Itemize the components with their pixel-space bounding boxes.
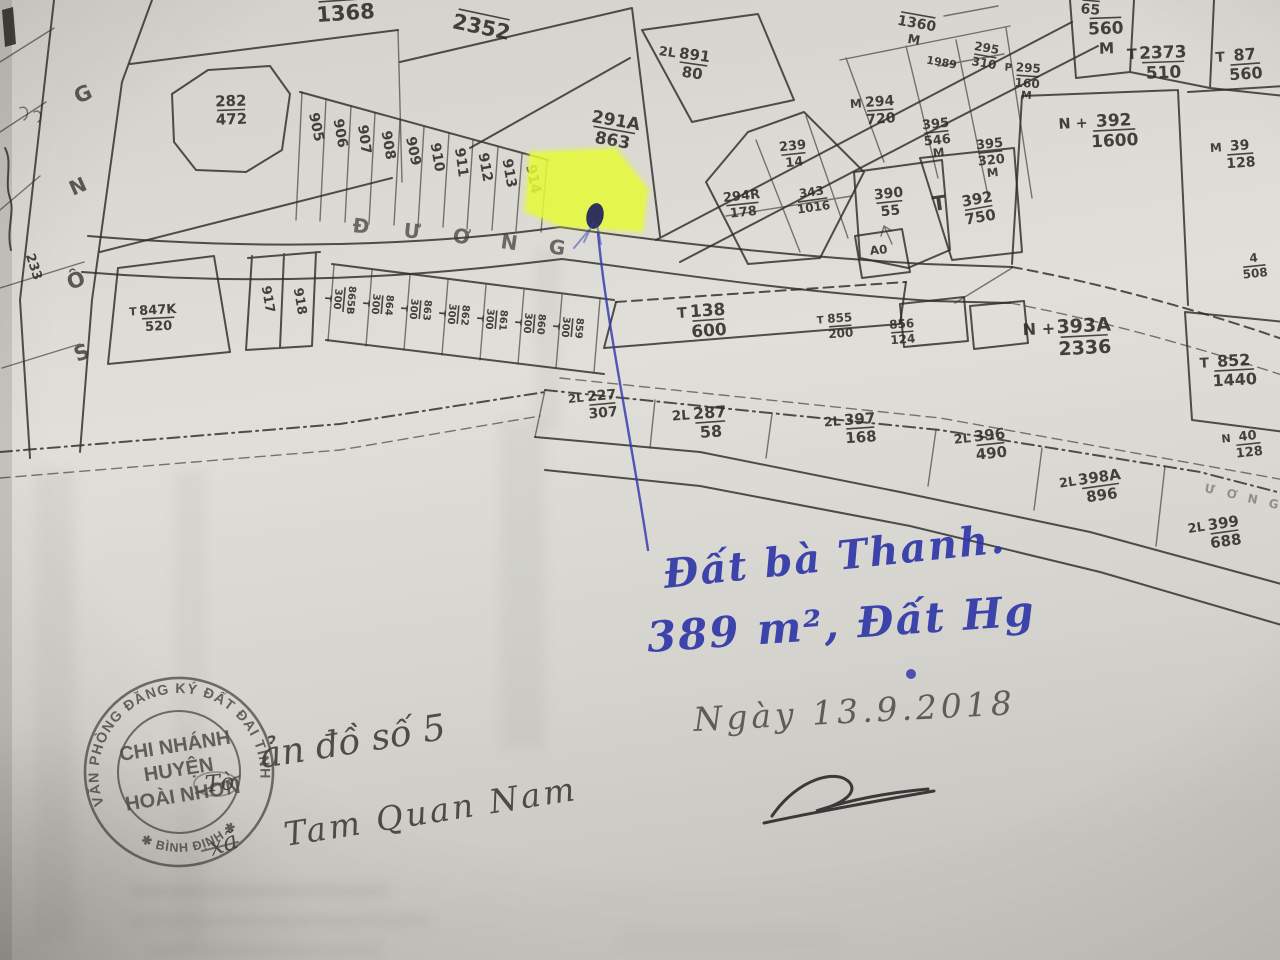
parcel-label-text: 65 [1080,1,1101,19]
parcel-label-text: M [1099,39,1115,58]
parcel-label: 65 [1080,0,1101,19]
parcel-label-text: 2L [658,44,677,61]
parcel-label-text: 55 [880,202,901,220]
parcel-label-text: T [1199,355,1210,372]
parcel-label-text: 720 [866,110,897,128]
parcel-label-text: M [907,31,922,48]
parcel-label-text: 80 [681,63,704,84]
parcel-label-text: 862 [458,304,471,326]
parcel-label-text: 128 [1226,154,1256,172]
parcel-label-text: 1440 [1212,369,1257,390]
parcel-label: 1368 [315,0,375,27]
parcel-label-text: 397 [843,409,875,429]
road-name-letter: N [499,229,519,255]
parcel-label-text: 2L [823,414,841,430]
parcel-label-text: 40 [1238,428,1258,445]
parcel-label-text: 847K [139,302,178,319]
parcel-label-text: T [129,305,138,318]
parcel-label-text: 124 [890,332,916,348]
parcel-label-text: 168 [845,427,877,447]
parcel-label-text: 39 [1229,137,1250,154]
paper-left-edge-shade [0,0,12,960]
parcel-label-text: 178 [729,204,758,222]
parcel-label-text: 14 [785,154,805,171]
road-name-letter: Ư [402,218,421,244]
parcel-label-text: T [1127,47,1138,63]
parcel-label-text: N + [1022,319,1056,340]
parcel-label-text: M [849,96,862,111]
cadastral-map-photo: 1368235228247290590690790890991091191291… [0,0,1280,960]
parcel-label: 282472 [215,91,248,128]
parcel-label-text: 852 [1217,350,1251,371]
parcel-label-text: P [1004,62,1013,74]
parcel-label-text: T [816,315,824,326]
parcel-label-text: 510 [1145,63,1181,84]
parcel-label-text: 863 [420,299,433,321]
fraction-bar [1090,17,1122,18]
parcel-label-text: 520 [145,319,173,335]
parcel-label-text: 860 [534,313,547,335]
parcel-label-text: 864 [382,294,395,316]
parcel-label-text: 2L [1058,474,1077,491]
parcel-label-text: 560 [1088,18,1124,39]
parcel-label-text: 4 [1249,251,1259,266]
parcel-label-text: 287 [692,402,727,423]
parcel-label-text: 1600 [1091,130,1139,152]
parcel-label-text: 472 [216,110,248,129]
parcel-label-text: T [1215,49,1226,66]
parcel-label-text: 2373 [1139,42,1187,64]
parcel-label-text: T [677,305,688,322]
parcel-label-text: 294 [865,93,896,111]
parcel-label-text: N + [1058,115,1088,133]
parcel-label-text: 490 [975,443,1008,464]
parcel-label-text: 855 [827,310,853,326]
parcel-label-text: A0 [869,242,888,258]
parcel-label-text: M [932,145,945,160]
parcel-label-text: 128 [1235,444,1264,462]
parcel-label-text: 58 [699,421,723,442]
road-name-letter: Đ [351,213,370,239]
parcel-label-text: 560 [1229,63,1264,84]
parcel-label-text: 295 [1015,60,1041,76]
parcel-label-text: 859 [572,317,585,339]
parcel-label-text: 861 [496,309,509,331]
parcel-label-text: 2336 [1058,336,1112,361]
parcel-label: A0 [869,242,888,258]
parcel-label-text: 600 [691,320,728,342]
parcel-label-text: 2L [1187,520,1206,537]
parcel-label-text: 282 [215,91,247,110]
parcel-label-text: 87 [1233,44,1257,65]
parcel-label-text: 508 [1242,265,1268,282]
parcel-label: 392750 [960,187,997,228]
parcel-label-text: 2L [953,431,971,448]
parcel-label-text: N [1221,432,1232,446]
parcel-label-text: 2L [567,391,584,406]
pen-dot [906,669,916,679]
parcel-label: 295310 [970,39,1000,72]
parcel-label-text: 1368 [316,0,376,27]
parcel-label-text: 307 [588,404,619,422]
road-name-letter: G [547,234,567,260]
parcel-label-text: 2L [671,407,691,424]
parcel-label-text: 200 [828,326,854,342]
parcel-label-text: M [1021,88,1033,102]
parcel-label-text: M [1209,140,1222,155]
parcel-label-text: M [986,165,999,180]
parcel-label-text: 856 [889,316,915,332]
